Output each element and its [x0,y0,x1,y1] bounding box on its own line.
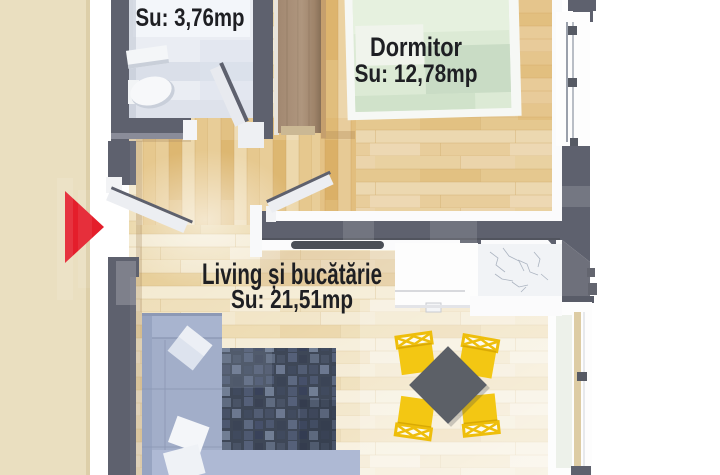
svg-text:Su: 12,78mp: Su: 12,78mp [355,60,478,88]
svg-text:Su: 3,76mp: Su: 3,76mp [136,4,245,32]
svg-text:Dormitor: Dormitor [370,32,462,62]
svg-text:Su: 21,51mp: Su: 21,51mp [231,284,353,314]
